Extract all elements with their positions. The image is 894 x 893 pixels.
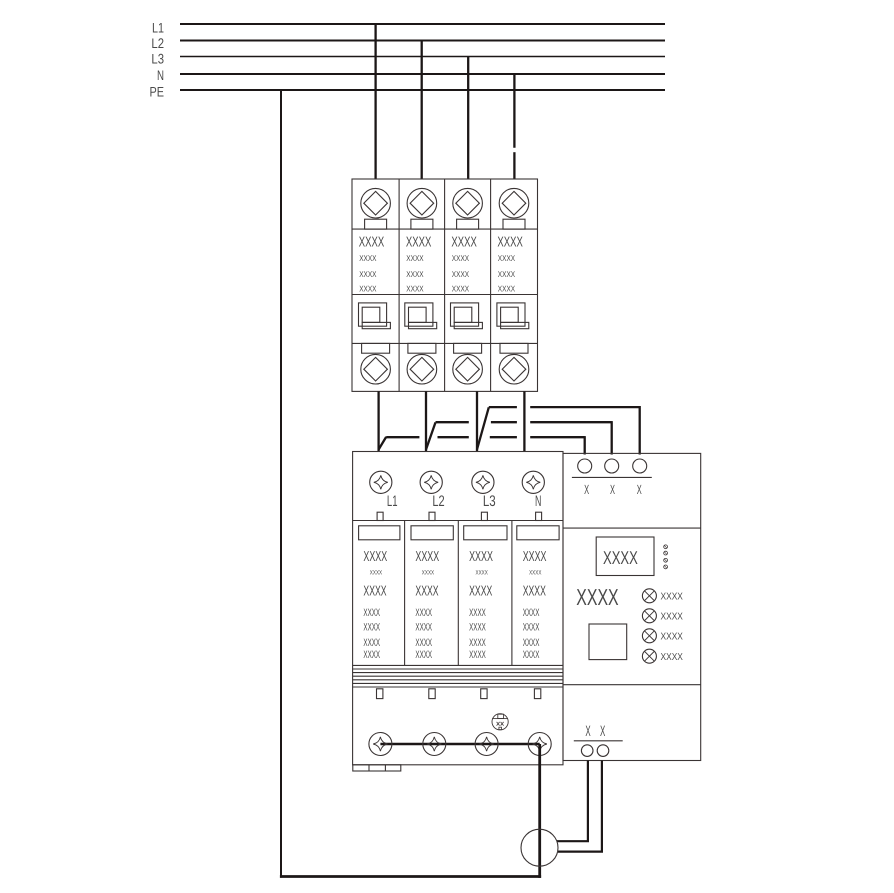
svg-text:XXXX: XXXX — [415, 607, 432, 619]
svg-text:L2: L2 — [151, 35, 164, 51]
svg-text:XXXX: XXXX — [363, 549, 387, 565]
svg-text:XXXX: XXXX — [661, 611, 684, 622]
svg-text:XXXX: XXXX — [452, 284, 470, 294]
svg-text:XXXX: XXXX — [415, 649, 432, 661]
svg-text:XXXX: XXXX — [406, 269, 424, 279]
svg-text:XXXX: XXXX — [523, 549, 547, 565]
svg-text:XXXX: XXXX — [363, 622, 380, 634]
svg-text:X: X — [637, 482, 642, 497]
svg-text:XXXX: XXXX — [406, 253, 424, 263]
svg-text:XXXX: XXXX — [469, 583, 492, 599]
svg-text:XXXX: XXXX — [498, 269, 516, 279]
svg-text:XXXX: XXXX — [523, 622, 540, 634]
svg-text:XXXX: XXXX — [422, 570, 435, 577]
svg-text:L3: L3 — [483, 493, 496, 510]
svg-text:XXXX: XXXX — [523, 583, 546, 599]
svg-text:XXXX: XXXX — [469, 549, 493, 565]
svg-text:N: N — [157, 67, 164, 83]
svg-text:XXXX: XXXX — [497, 235, 523, 251]
svg-text:XXXX: XXXX — [469, 607, 486, 619]
svg-text:XXXX: XXXX — [523, 649, 540, 661]
svg-text:XXXX: XXXX — [523, 637, 540, 649]
svg-text:XXXX: XXXX — [452, 253, 470, 263]
svg-text:XXXX: XXXX — [406, 235, 432, 251]
svg-text:X: X — [610, 482, 615, 497]
svg-text:X: X — [585, 723, 590, 740]
svg-text:XXXX: XXXX — [452, 269, 470, 279]
svg-text:XXXX: XXXX — [415, 637, 432, 649]
svg-text:XXXX: XXXX — [469, 649, 486, 661]
svg-text:XXXX: XXXX — [529, 570, 542, 577]
svg-text:XXXX: XXXX — [359, 284, 377, 294]
svg-text:X: X — [600, 723, 605, 740]
svg-text:L1: L1 — [387, 493, 398, 510]
svg-text:XXXX: XXXX — [476, 570, 489, 577]
svg-text:XXXX: XXXX — [661, 652, 684, 663]
svg-text:N: N — [535, 493, 541, 510]
svg-text:XXXX: XXXX — [415, 622, 432, 634]
svg-text:PE: PE — [150, 83, 165, 99]
svg-text:XXXX: XXXX — [415, 549, 439, 565]
svg-text:XXXX: XXXX — [359, 269, 377, 279]
svg-text:XXXX: XXXX — [370, 570, 383, 577]
svg-text:XXXX: XXXX — [498, 284, 516, 294]
svg-text:XXXX: XXXX — [451, 235, 477, 251]
svg-text:XXXX: XXXX — [523, 607, 540, 619]
svg-text:XXXX: XXXX — [363, 637, 380, 649]
svg-text:XXXX: XXXX — [415, 583, 438, 599]
svg-text:XXXX: XXXX — [363, 583, 386, 599]
svg-text:X: X — [584, 482, 589, 497]
svg-text:XXXX: XXXX — [363, 607, 380, 619]
svg-text:XXXX: XXXX — [363, 649, 380, 661]
svg-text:L2: L2 — [432, 493, 444, 510]
svg-text:XXXX: XXXX — [603, 547, 638, 568]
svg-text:XXXX: XXXX — [661, 591, 684, 602]
svg-text:XXXX: XXXX — [469, 622, 486, 634]
svg-text:L3: L3 — [151, 51, 164, 67]
svg-text:XXXX: XXXX — [576, 584, 618, 610]
svg-text:XXXX: XXXX — [406, 284, 424, 294]
svg-text:XXXX: XXXX — [359, 253, 377, 263]
svg-text:XXXX: XXXX — [498, 253, 516, 263]
svg-text:XXXX: XXXX — [359, 235, 385, 251]
svg-text:L1: L1 — [152, 20, 164, 36]
svg-text:XXXX: XXXX — [661, 631, 684, 642]
svg-text:XXXX: XXXX — [469, 637, 486, 649]
